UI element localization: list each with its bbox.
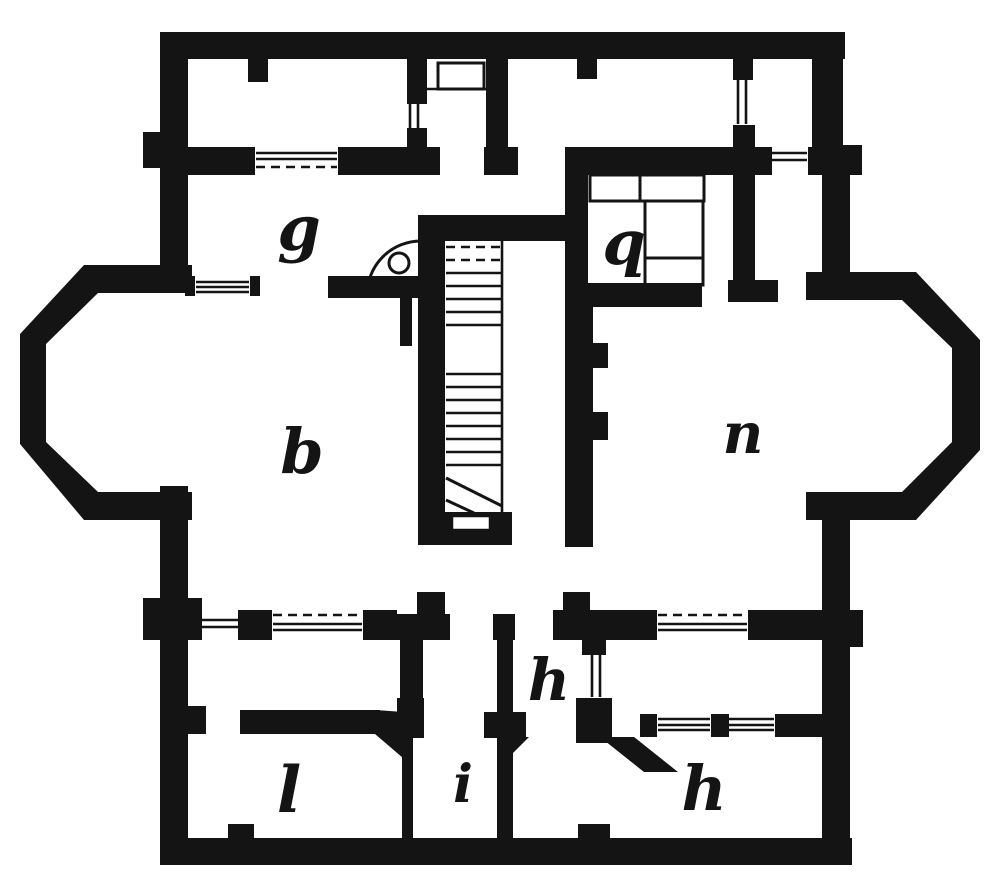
- li-wall-lower: [402, 738, 413, 838]
- bottomdiv-wall-f: [748, 610, 822, 640]
- bottomdiv-wall-e: [595, 610, 657, 640]
- bottomdiv-wall-d: [553, 610, 595, 640]
- room-label-i: i: [453, 754, 473, 815]
- topright-div-lower: [733, 125, 755, 285]
- window-b-l: [273, 624, 362, 630]
- n-pilaster-b: [593, 412, 608, 440]
- room-label-n: n: [723, 401, 764, 467]
- topdiv-wall-a: [160, 147, 255, 175]
- bottomdiv-wall-c: [380, 614, 450, 640]
- window-n: [658, 624, 747, 630]
- stair-wall-left: [418, 215, 445, 545]
- pilaster-under-top-wall-a: [248, 59, 268, 82]
- wall-left-lower: [160, 486, 188, 865]
- l-inner-wall: [240, 710, 380, 734]
- bottomdiv-stub: [493, 614, 515, 640]
- bed-body: [645, 201, 703, 285]
- window-topright-vertical: [738, 80, 746, 124]
- n-wall-left: [565, 285, 593, 547]
- shaft-foot: [728, 280, 778, 302]
- closet-wall-left-lower: [407, 128, 427, 150]
- wall-right-lower: [822, 493, 850, 865]
- staircase-treads: [446, 273, 502, 465]
- bottomdiv-pilaster-up-a: [417, 592, 445, 616]
- bottomdiv-pilaster-up-b: [563, 592, 590, 612]
- wall-right-top: [812, 58, 843, 150]
- wall-right-mid: [822, 170, 850, 285]
- gb-wall-stub: [400, 296, 412, 346]
- topdiv-wall-e: [808, 147, 843, 175]
- h-corner-chamfer-right: [600, 737, 678, 772]
- bottomdiv-junction-left: [160, 598, 202, 640]
- door-line-l: [198, 620, 240, 627]
- hcorridor-stub-top: [582, 640, 606, 655]
- stove-circle: [389, 253, 409, 273]
- floor-plan-page: g q b n h i l h: [0, 0, 1000, 884]
- staircase-bottom-door: [452, 516, 490, 530]
- windowwall-stub-b: [711, 714, 729, 737]
- bottom-wall-pilaster-a: [228, 824, 254, 838]
- stair-tread-dashed: [446, 247, 502, 260]
- gb-wall-b: [250, 276, 260, 296]
- bay-window-left: [20, 265, 192, 520]
- windowwall-stub-c: [775, 714, 822, 737]
- window-hcorridor-vertical: [592, 655, 600, 697]
- windowwall-stub-a: [640, 714, 657, 737]
- staircase-winders: [446, 478, 502, 513]
- pilaster-left-outer-lower: [143, 598, 160, 640]
- l-door-pilaster: [188, 706, 206, 734]
- room-label-h-upper: h: [528, 646, 570, 714]
- pilaster-under-top-wall-b: [577, 59, 597, 79]
- floor-plan-drawing: g q b n h i l h: [0, 0, 1000, 884]
- window-closet-vertical: [410, 104, 418, 128]
- topdiv-wall-c: [484, 147, 518, 175]
- room-label-l: l: [277, 753, 301, 828]
- room-label-b: b: [280, 415, 323, 488]
- bottomdiv-window-block-a: [238, 610, 272, 640]
- n-pilaster-a: [593, 343, 608, 368]
- window-topdiv-left: [256, 153, 337, 159]
- bay-window-right: [806, 272, 980, 520]
- bed-headboard: [590, 175, 704, 201]
- q-wall-left: [565, 147, 588, 287]
- wall-top: [160, 32, 845, 59]
- window-h-b: [729, 719, 774, 730]
- wall-segments: [20, 32, 980, 865]
- pilaster-left-outer-upper: [143, 132, 160, 168]
- gb-wall-c: [328, 276, 420, 298]
- topdiv-wall-b: [338, 147, 440, 175]
- bottom-wall-pilaster-b: [578, 824, 610, 838]
- li-wall-upper: [400, 640, 423, 700]
- topright-div-upper: [733, 59, 753, 80]
- l-corner-chamfer: [375, 710, 403, 758]
- room-label-q: q: [602, 206, 645, 279]
- door-threshold-topright: [772, 153, 807, 160]
- room-label-h-lower: h: [681, 752, 726, 825]
- pilaster-right-outer-lower: [850, 610, 863, 647]
- closet-wall-right: [486, 59, 508, 149]
- staircase: [446, 273, 502, 513]
- window-gb: [196, 282, 249, 292]
- washstand: [438, 63, 484, 89]
- hcorridor-block: [576, 698, 612, 743]
- ih-partition-pilaster: [484, 712, 526, 738]
- wall-bottom: [160, 838, 852, 865]
- closet-wall-left-upper: [407, 59, 427, 104]
- room-label-g: g: [277, 192, 320, 265]
- window-h-a: [658, 719, 710, 730]
